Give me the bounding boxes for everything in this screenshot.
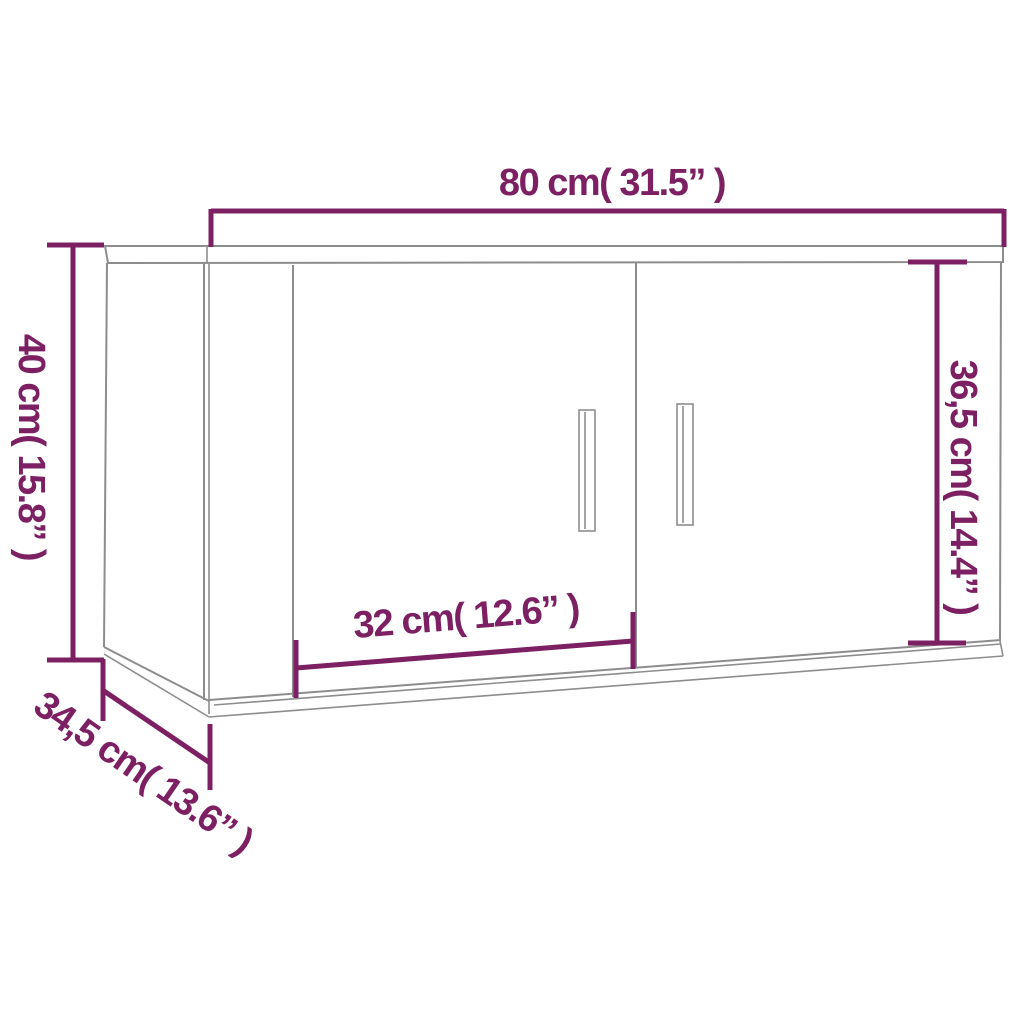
left-door-handle xyxy=(579,410,595,531)
cabinet-right-edge xyxy=(1000,262,1001,641)
cabinet-doors-bottom-edge xyxy=(209,640,1001,700)
cabinet-side-bottom-edge-inner xyxy=(104,654,209,717)
height-dimension xyxy=(47,245,104,661)
cabinet-side-bottom-edge xyxy=(104,647,209,701)
cabinet-underside-right-edge xyxy=(1000,641,1003,656)
cabinet-drawing xyxy=(0,0,1024,1024)
width-dimension-label: 80 cm( 31.5” ) xyxy=(499,164,725,202)
front-height-dimension-label: 36,5 cm( 14.4” ) xyxy=(944,360,982,615)
product-dimension-diagram: 80 cm( 31.5” ) 40 cm( 15.8” ) 36,5 cm( 1… xyxy=(0,0,1024,1024)
width-dimension xyxy=(211,209,1004,247)
cabinet-top-strip xyxy=(105,246,1003,263)
cabinet-left-back-edge xyxy=(104,263,107,647)
right-door-handle xyxy=(677,404,693,525)
cabinet-doors-bottom-gap xyxy=(214,644,1001,705)
height-dimension-label: 40 cm( 15.8” ) xyxy=(12,334,50,560)
